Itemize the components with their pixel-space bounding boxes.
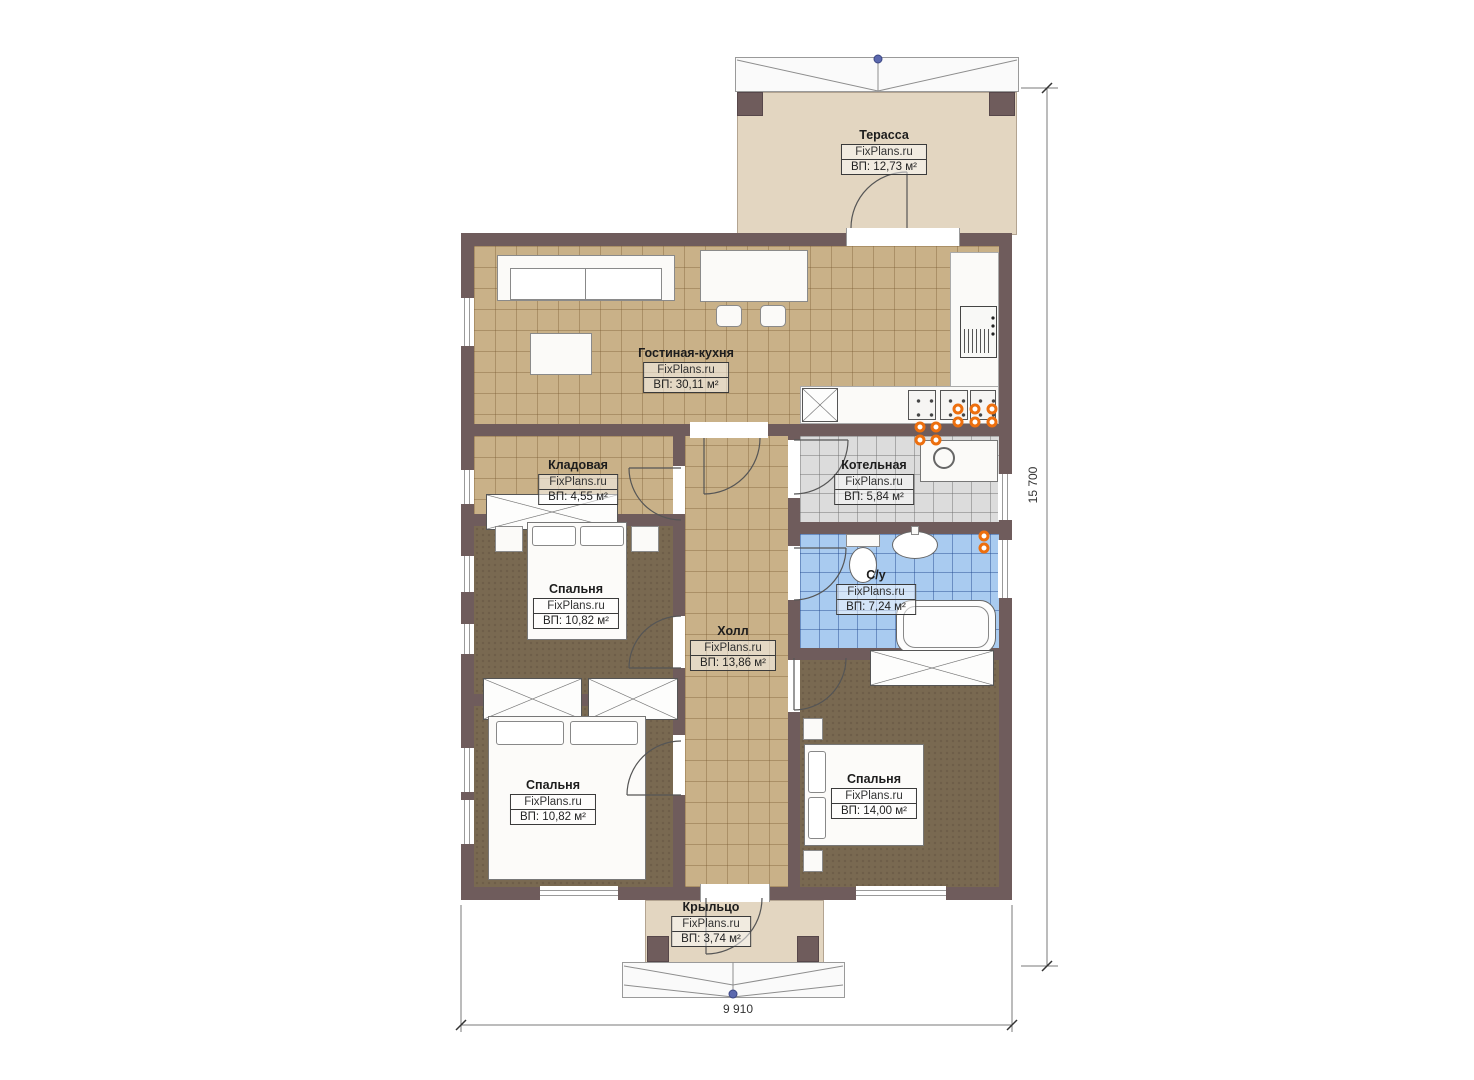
- room-label-terrace: Терасса FixPlans.ru ВП: 12,73 м²: [841, 128, 927, 175]
- window-boiler-right: [998, 474, 1012, 520]
- fridge: [960, 306, 997, 358]
- room-area: ВП: 14,00 м²: [832, 804, 916, 818]
- dimension-label-vertical: 15 700: [1026, 453, 1040, 517]
- room-info-box: FixPlans.ru ВП: 14,00 м²: [831, 788, 917, 819]
- pillow: [580, 526, 624, 546]
- window-storage-left: [460, 470, 474, 504]
- bathroom-sink: [892, 531, 938, 559]
- stove-hob-3: [970, 390, 996, 420]
- watermark: FixPlans.ru: [511, 795, 595, 810]
- sofa-cushion-divider: [585, 268, 586, 300]
- floor-plan: 15 700 9 910 Терасса FixPlans.ru ВП: 12,…: [0, 0, 1474, 1080]
- room-area: ВП: 10,82 м²: [534, 614, 618, 628]
- porch-post-left: [647, 936, 669, 962]
- watermark: FixPlans.ru: [842, 145, 926, 160]
- watermark: FixPlans.ru: [837, 585, 915, 600]
- room-label-bedroom1: Спальня FixPlans.ru ВП: 10,82 м²: [533, 582, 619, 629]
- window-bedroom1-left-2: [460, 624, 474, 654]
- room-area: ВП: 7,24 м²: [837, 600, 915, 614]
- sink-tap: [911, 526, 919, 535]
- window-bedroom2-left-1: [460, 748, 474, 792]
- room-label-storage: Кладовая FixPlans.ru ВП: 4,55 м²: [538, 458, 618, 505]
- watermark: FixPlans.ru: [835, 475, 913, 490]
- wall-living-boiler: [768, 424, 999, 436]
- room-title: Терасса: [841, 128, 927, 142]
- room-label-bathroom: С/у FixPlans.ru ВП: 7,24 м²: [836, 568, 916, 615]
- window-bedroom1-left-1: [460, 556, 474, 592]
- watermark: FixPlans.ru: [691, 641, 775, 656]
- window-living-left: [460, 298, 474, 346]
- room-title: Котельная: [834, 458, 914, 472]
- room-area: ВП: 13,86 м²: [691, 656, 775, 670]
- watermark: FixPlans.ru: [832, 789, 916, 804]
- wall-hall-right-4: [788, 712, 800, 887]
- room-title: Спальня: [510, 778, 596, 792]
- room-area: ВП: 30,11 м²: [644, 378, 727, 392]
- terrace-post-right: [989, 92, 1015, 116]
- room-info-box: FixPlans.ru ВП: 10,82 м²: [510, 794, 596, 825]
- dining-table: [700, 250, 808, 302]
- nightstand: [495, 526, 523, 552]
- porch-post-right: [797, 936, 819, 962]
- hall-opening: [690, 422, 768, 438]
- room-area: ВП: 5,84 м²: [835, 490, 913, 504]
- room-title: Кладовая: [538, 458, 618, 472]
- room-info-box: FixPlans.ru ВП: 5,84 м²: [834, 474, 914, 505]
- pillow: [570, 721, 638, 745]
- wall-living-storage: [474, 424, 690, 436]
- terrace-post-left: [737, 92, 763, 116]
- nightstand: [631, 526, 659, 552]
- watermark: FixPlans.ru: [644, 363, 727, 378]
- wall-hall-right-1: [788, 424, 800, 440]
- chair-1: [716, 305, 742, 327]
- room-label-bedroom3: Спальня FixPlans.ru ВП: 14,00 м²: [831, 772, 917, 819]
- room-label-boiler: Котельная FixPlans.ru ВП: 5,84 м²: [834, 458, 914, 505]
- stove-hob-2: [940, 390, 968, 420]
- wall-hall-left-1: [673, 424, 685, 466]
- pillow: [808, 797, 826, 839]
- room-title: Спальня: [533, 582, 619, 596]
- pillow: [808, 751, 826, 793]
- wardrobe-bedroom1: [483, 678, 582, 720]
- coffee-table: [530, 333, 592, 375]
- room-area: ВП: 12,73 м²: [842, 160, 926, 174]
- room-title: Холл: [690, 624, 776, 638]
- room-title: С/у: [836, 568, 916, 582]
- boiler-unit: [920, 440, 998, 482]
- window-bedroom2-bottom: [540, 886, 618, 900]
- pillow: [532, 526, 576, 546]
- stove-hob-1: [908, 390, 936, 420]
- room-info-box: FixPlans.ru ВП: 10,82 м²: [533, 598, 619, 629]
- room-title: Крыльцо: [671, 900, 751, 914]
- terrace-door-opening: [846, 228, 960, 246]
- room-label-hall: Холл FixPlans.ru ВП: 13,86 м²: [690, 624, 776, 671]
- toilet-tank: [846, 534, 880, 547]
- wardrobe-bedroom3: [870, 650, 994, 686]
- wall-hall-left-4: [673, 795, 685, 887]
- window-bathroom-right: [998, 540, 1012, 598]
- watermark: FixPlans.ru: [539, 475, 617, 490]
- room-info-box: FixPlans.ru ВП: 13,86 м²: [690, 640, 776, 671]
- wardrobe-bedroom2: [588, 678, 678, 720]
- room-title: Спальня: [831, 772, 917, 786]
- terrace-steps: [735, 57, 1019, 92]
- room-area: ВП: 10,82 м²: [511, 810, 595, 824]
- room-label-living: Гостиная-кухня FixPlans.ru ВП: 30,11 м²: [638, 346, 734, 393]
- wall-hall-left-2: [673, 522, 685, 616]
- room-info-box: FixPlans.ru ВП: 12,73 м²: [841, 144, 927, 175]
- room-title: Гостиная-кухня: [638, 346, 734, 360]
- pillow: [496, 721, 564, 745]
- watermark: FixPlans.ru: [534, 599, 618, 614]
- room-info-box: FixPlans.ru ВП: 7,24 м²: [836, 584, 916, 615]
- room-area: ВП: 3,74 м²: [672, 932, 750, 946]
- room-label-porch: Крыльцо FixPlans.ru ВП: 3,74 м²: [671, 900, 751, 947]
- nightstand: [803, 718, 823, 740]
- sofa-seat: [510, 268, 662, 300]
- window-bedroom2-left-2: [460, 800, 474, 844]
- room-info-box: FixPlans.ru ВП: 4,55 м²: [538, 474, 618, 505]
- room-info-box: FixPlans.ru ВП: 3,74 м²: [671, 916, 751, 947]
- porch-steps: [622, 962, 845, 998]
- dimension-label-horizontal: 9 910: [700, 1002, 776, 1016]
- window-bedroom3-bottom: [856, 886, 946, 900]
- nightstand: [803, 850, 823, 872]
- wall-boiler-bathroom: [788, 522, 999, 534]
- room-area: ВП: 4,55 м²: [539, 490, 617, 504]
- chair-2: [760, 305, 786, 327]
- room-label-bedroom2: Спальня FixPlans.ru ВП: 10,82 м²: [510, 778, 596, 825]
- wall-top-left: [461, 233, 846, 246]
- watermark: FixPlans.ru: [672, 917, 750, 932]
- room-info-box: FixPlans.ru ВП: 30,11 м²: [643, 362, 728, 393]
- kitchen-sink: [802, 388, 838, 422]
